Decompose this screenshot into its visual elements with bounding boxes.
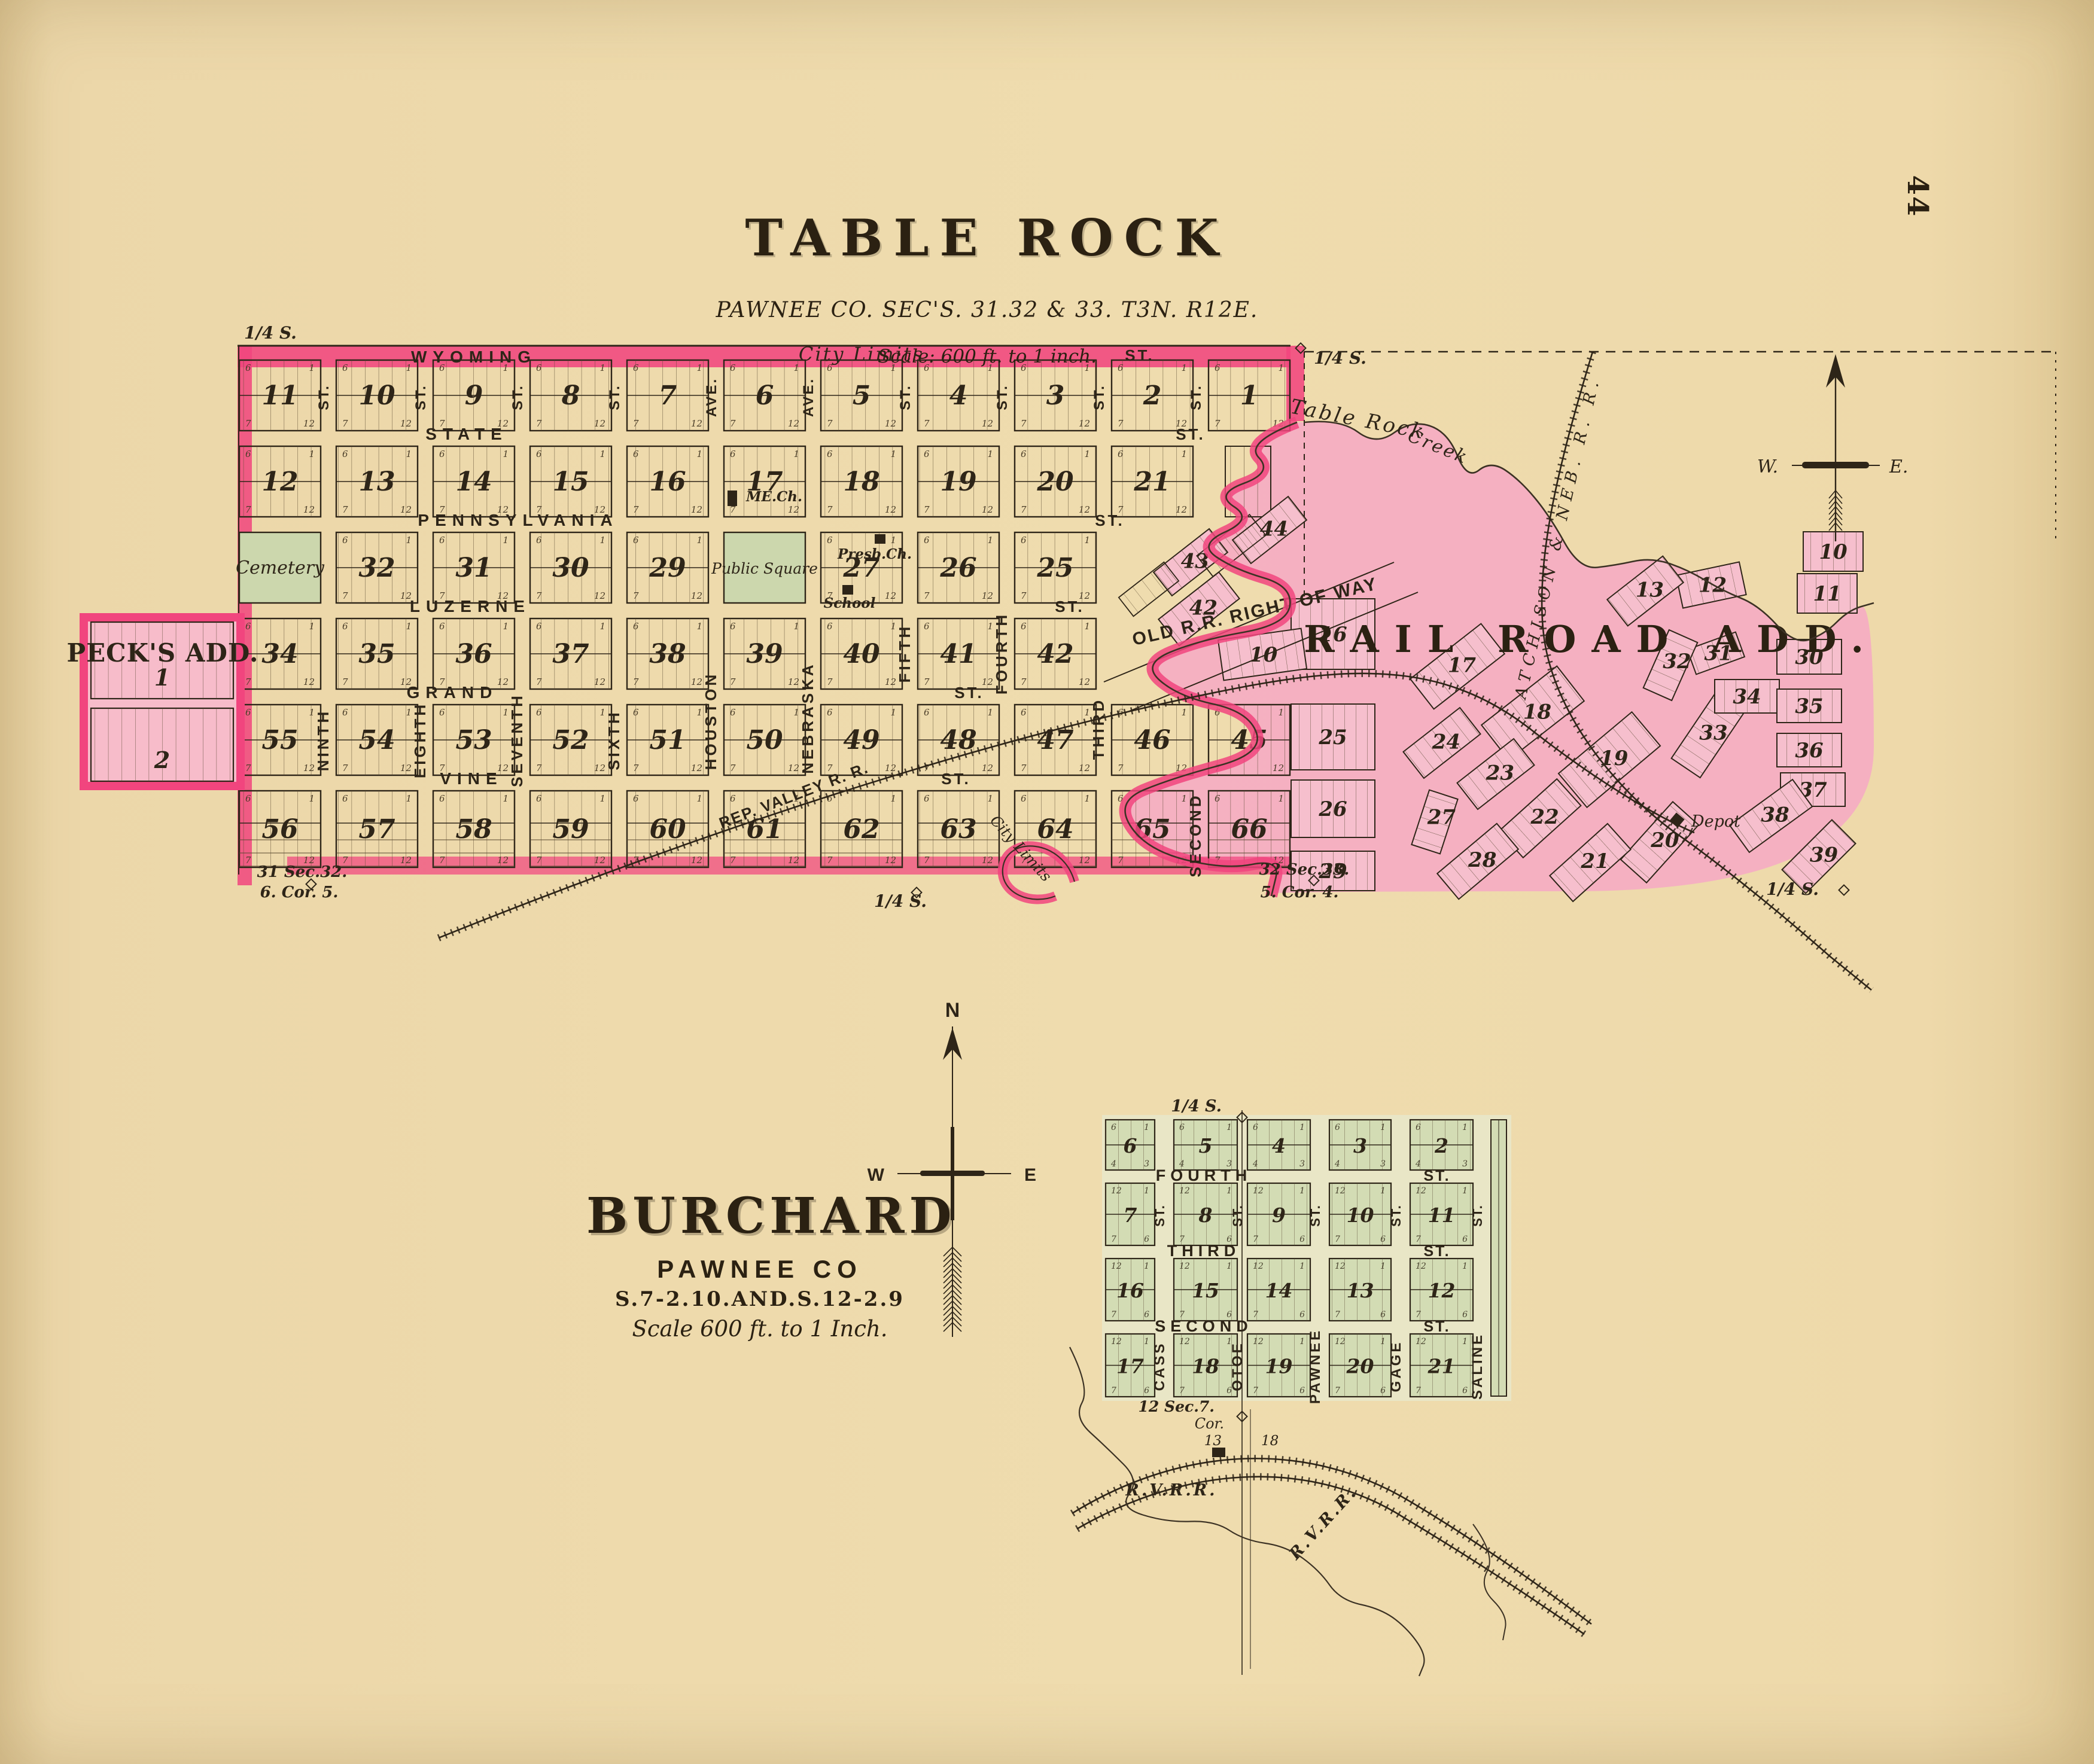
block-number: 56 [261,814,298,845]
street-suffix-vertical: ST. [1188,384,1204,410]
lot-number: 6 [439,793,445,804]
compass-west-label: W. [1757,456,1778,477]
compass-feather [943,1285,952,1294]
lot-number: 7 [1111,1386,1116,1396]
block-number: 12 [1428,1279,1456,1302]
burchard-block: 1217612 [1410,1259,1473,1321]
lot-number: 6 [730,449,736,459]
block-number: 57 [358,814,395,845]
lot-number: 1 [599,793,605,804]
lot-number: 6 [342,362,348,373]
street-label-second: SECOND [1155,1317,1253,1335]
lot-number: 12 [1079,677,1090,687]
city-block: Public Square [711,532,818,603]
lot-number: 6 [827,449,833,459]
street-label-fifth: FIFTH [896,624,914,683]
burchard-title: BURCHARD [586,1187,933,1245]
city-block: 6171239 [724,619,805,689]
block-number: 34 [1733,685,1761,709]
city-block: 6171226 [918,532,999,603]
compass-east-label: E. [1889,456,1908,477]
lot-number: 4 [1415,1159,1421,1169]
city-block: 6171229 [627,532,708,603]
lot-number: 6 [1462,1386,1468,1396]
me-church-building [728,490,737,506]
street-label-saline: SALINE [1469,1333,1486,1400]
lot-number: 12 [982,418,993,429]
burchard-block: 1217616 [1106,1259,1155,1321]
lot-number: 6 [827,535,833,546]
lot-number: 1 [890,449,896,459]
city-block: 6171251 [627,705,708,775]
burchard-map: 6143661435614346143361432121767121768121… [868,999,1591,1676]
burchard-block: 1217619 [1247,1334,1310,1397]
compass-feather [952,1312,961,1321]
city-block: 6171214 [433,446,515,517]
lot-number: 7 [1416,1386,1421,1396]
lot-number: 6 [633,621,639,632]
lot-number: 7 [536,677,542,687]
lot-number: 6 [633,449,639,459]
city-block: 6171217 [724,446,805,517]
lot-number: 1 [1299,1123,1305,1132]
lot-number: 12 [1111,1337,1122,1346]
city-block: 6171256 [239,791,321,867]
street-label-third: THIRD [1089,697,1107,760]
compass-feather [943,1290,952,1299]
lot-number: 12 [1335,1337,1346,1346]
atlas-page: { "page": {"number": "44"}, "colors": { … [0,0,2094,1764]
city-block: 6171259 [530,791,611,867]
lot-number: 7 [730,418,736,429]
lot-number: 12 [788,855,799,866]
lot-number: 12 [400,763,412,773]
block-number: 12 [1699,574,1727,598]
burchard-block: 1217621 [1410,1334,1473,1397]
block-number: 6 [756,380,774,411]
lot-number: 1 [406,621,412,632]
block-number: 5 [853,380,871,411]
lot-number: 6 [439,707,445,718]
lot-number: 6 [439,535,445,546]
lot-number: 6 [1144,1235,1149,1244]
lot-number: 6 [1179,1123,1185,1132]
block-number: 42 [1037,639,1073,669]
burchard-block: 121768 [1174,1183,1237,1245]
lot-number: 12 [1179,1337,1190,1346]
block-number: 18 [843,467,879,497]
section-corner-label: 32 Sec.33. [1259,861,1350,879]
city-block: 6171225 [1015,532,1096,603]
lot-number: 1 [1380,1186,1386,1196]
city-block: Cemetery [236,532,325,603]
pecks-block: 2 [91,708,233,781]
block-number: 60 [649,814,686,845]
lot-number: 7 [536,590,542,601]
lot-number: 12 [982,504,993,515]
lot-number: 7 [924,418,930,429]
lot-number: 1 [503,621,509,632]
block-number: 3 [1046,380,1065,411]
block-number: 16 [1116,1279,1144,1302]
compass-feather [952,1301,961,1310]
rail-road-add-title: RAIL ROAD ADD. [1304,617,1879,661]
lot-number: 6 [536,707,542,718]
lot-number: 12 [303,763,315,773]
block-number: 11 [261,380,298,411]
lot-number: 12 [594,418,605,429]
city-block: 6171242 [1015,619,1096,689]
lot-number: 12 [303,504,315,515]
block-number: 39 [746,639,783,669]
street-suffix-vertical: ST. [1470,1204,1485,1227]
block-number: 18 [1192,1355,1219,1378]
lot-number: 6 [730,362,736,373]
lot-number: 7 [924,855,930,866]
quarter-section-label: 1/4 S. [874,891,927,911]
burchard-block: 1217610 [1329,1183,1391,1245]
burchard-block: 61432 [1410,1120,1473,1170]
block-number: 8 [1198,1204,1213,1227]
lot-number: 7 [924,677,930,687]
table-rock-subtitle: PAWNEE CO. SEC'S. 31.32 & 33. T3N. R12E. [658,298,1316,322]
lot-number: 1 [696,449,702,459]
compass-feather [943,1263,952,1272]
lot-number: 1 [599,621,605,632]
lot-number: 6 [1144,1386,1149,1396]
lot-number: 7 [536,763,542,773]
lot-number: 6 [245,449,251,459]
quarter-section-label: 1/4 S. [1171,1097,1222,1116]
burchard-block: 61434 [1247,1120,1310,1170]
lot-number: 12 [691,504,702,515]
compass-feather [943,1323,952,1332]
lot-number: 1 [1144,1262,1149,1271]
block-number: 36 [1795,739,1823,763]
compass-crossbar-bold [1802,462,1869,468]
city-block: 617122 [1112,360,1193,431]
lot-number: 7 [245,677,251,687]
lot-number: 12 [982,590,993,601]
street-label-state: STATE [425,425,508,443]
block-number: 3 [1353,1134,1367,1157]
lot-number: 6 [924,535,930,546]
me-church-label: ME.Ch. [745,489,802,505]
lot-number: 12 [1253,1262,1264,1271]
lot-number: 6 [1299,1310,1305,1320]
lot-number: 7 [730,855,736,866]
lot-number: 6 [827,707,833,718]
block-number: 15 [1192,1279,1219,1302]
street-suffix-vertical: ST. [897,384,914,410]
lot-number: 12 [303,418,315,429]
compass-feather [943,1258,952,1267]
lot-number: 6 [342,449,348,459]
lot-number: 1 [1462,1262,1468,1271]
lot-number: 6 [1299,1235,1305,1244]
compass-feather [952,1258,961,1267]
lot-number: 1 [503,535,509,546]
city-block: 6171238 [627,619,708,689]
compass-east-label: E [1024,1165,1036,1185]
lot-number: 7 [633,504,639,515]
lot-number: 1 [1226,1262,1232,1271]
fan-block: 36 [1777,733,1842,767]
city-block: 6171213 [336,446,418,517]
street-label-ninth: NINTH [314,709,332,771]
section-corner-label: 5. Cor. 4. [1261,883,1339,901]
compass-rose-table-rock: W.E. [1757,354,1909,541]
block-number: 19 [940,467,976,497]
section-corner-label: 31 Sec.32. [257,863,348,881]
quarter-section-label: 1/4 S. [1314,348,1366,368]
street-suffix: ST. [954,684,984,702]
fan-block: 11 [1797,574,1857,613]
lot-number: 7 [633,590,639,601]
city-block: 6171254 [336,705,418,775]
lot-number: 12 [497,677,509,687]
block-number: 4 [1272,1134,1286,1157]
lot-number: 7 [1335,1310,1340,1320]
lot-number: 7 [1253,1235,1258,1244]
lot-number: 6 [924,793,930,804]
lot-number: 1 [1084,621,1090,632]
city-block: 6171240 [821,619,902,689]
street-suffix: ST. [1055,598,1085,616]
block-number: 53 [455,725,492,755]
lot-number: 1 [309,793,315,804]
lot-number: 12 [1416,1186,1426,1196]
lot-number: 7 [1111,1235,1116,1244]
lot-number: 12 [1176,504,1187,515]
street-label-fourth: FOURTH [1156,1166,1252,1184]
lot-number: 6 [1111,1123,1116,1132]
street-suffix-vertical: ST. [1308,1204,1323,1227]
compass-feather [952,1323,961,1332]
block-number: 62 [843,814,879,845]
block-number: 20 [1036,467,1074,497]
street-suffix-vertical: AVE. [704,377,720,417]
lot-number: 6 [1021,621,1027,632]
city-block: 6171260 [627,791,708,867]
block-number: 11 [1813,582,1841,606]
lot-number: 1 [1144,1186,1149,1196]
lot-number: 1 [987,793,993,804]
lot-number: 1 [696,535,702,546]
compass-feather [943,1274,952,1283]
block-number: 12 [261,467,298,497]
lot-number: 6 [1380,1235,1386,1244]
lot-number: 1 [793,621,799,632]
block-number: 33 [1699,721,1727,745]
lot-number: 1 [890,535,896,546]
lot-number: 6 [827,621,833,632]
block-number: 13 [358,467,395,497]
block-number: 49 [843,725,879,755]
street-suffix: ST. [1423,1318,1450,1335]
lot-number: 4 [1110,1159,1116,1169]
fan-block: 26 [1291,780,1375,837]
quarter-section-label: 1/4 S. [244,323,297,343]
lot-number: 6 [1021,707,1027,718]
street-suffix-vertical: ST. [607,384,623,410]
lot-number: 12 [885,855,896,866]
block-number: 38 [1761,803,1789,827]
lot-number: 3 [1380,1159,1386,1169]
lot-number: 7 [633,418,639,429]
block-number: 36 [455,639,492,669]
block-number: 66 [1231,814,1267,845]
green-square-label: Cemetery [236,557,325,578]
lot-number: 6 [924,707,930,718]
block-number: 7 [659,380,677,411]
block-number: 19 [1265,1355,1293,1378]
lot-number: 7 [827,855,833,866]
block-number: 41 [940,639,976,669]
lot-number: 7 [1021,504,1027,515]
city-block: 617124 [918,360,999,431]
street-label-nebraska: NEBRASKA [799,662,817,773]
block-number: 54 [358,725,395,755]
lot-number: 6 [1462,1235,1468,1244]
block-number: 25 [1036,553,1073,583]
lot-number: 1 [1380,1337,1386,1346]
city-block: 6171237 [530,619,611,689]
lot-number: 7 [1253,1310,1258,1320]
lot-number: 6 [342,707,348,718]
lot-number: 7 [342,677,348,687]
street-suffix-vertical: ST. [1230,1204,1245,1227]
fan-block: 25 [1291,704,1375,770]
street-suffix: ST. [941,770,971,788]
lot-number: 7 [245,504,251,515]
street-label-second: SECOND [1186,793,1204,877]
lot-number: 6 [245,707,251,718]
block-number: 23 [1486,761,1514,785]
block-number: 52 [552,725,589,755]
lot-number: 6 [1253,1123,1258,1132]
city-block: 617129 [433,360,515,431]
lot-number: 6 [730,707,736,718]
lot-number: 1 [309,621,315,632]
block-number: 21 [1133,467,1170,497]
block-number: 13 [1636,578,1664,602]
street-label-seventh: SEVENTH [508,693,526,787]
lot-number: 6 [924,449,930,459]
street-label-pawnee: PAWNEE [1307,1329,1323,1404]
lot-number: 12 [788,677,799,687]
lot-number: 1 [1380,1123,1386,1132]
block-number: 28 [1468,848,1496,872]
green-square-label: Public Square [711,560,818,577]
lot-number: 1 [599,449,605,459]
lot-number: 6 [1462,1310,1468,1320]
lot-number: 7 [245,418,251,429]
lot-number: 12 [594,677,605,687]
block-number: 6 [1124,1134,1137,1157]
lot-number: 12 [885,590,896,601]
street-suffix-vertical: ST. [994,384,1011,410]
city-block: 6171258 [433,791,515,867]
lot-number: 6 [536,362,542,373]
block-number: 44 [1260,517,1288,541]
section-corner-marker [1839,885,1849,895]
table-rock-title: TABLE ROCK [688,208,1286,267]
lot-number: 12 [885,763,896,773]
city-block: 6171216 [627,446,708,517]
burchard-sections-note: S.7-2.10.AND.S.12-2.9 [598,1287,921,1311]
lot-number: 3 [1299,1159,1305,1169]
lot-number: 1 [1144,1337,1149,1346]
block-number: 63 [940,814,976,845]
city-block: 617128 [530,360,611,431]
city-block: 6171255 [239,705,321,775]
city-block: 6171246 [1112,705,1193,775]
lot-number: 1 [1226,1186,1232,1196]
lot-number: 7 [1335,1386,1340,1396]
lot-number: 7 [827,677,833,687]
lot-number: 12 [303,677,315,687]
block-number: 58 [455,814,492,845]
lot-number: 1 [406,535,412,546]
lot-number: 1 [1278,793,1284,804]
block-number: 35 [358,639,395,669]
city-block: 6171211 [239,360,321,431]
lot-number: 6 [439,621,445,632]
block-number: 38 [649,639,686,669]
street-label-third: THIRD [1167,1242,1241,1260]
street-label-pennsylvania: PENNSYLVANIA [418,511,618,529]
presb-church-building [875,534,885,544]
block-number: 17 [1116,1355,1144,1378]
lot-number: 6 [342,621,348,632]
lot-number: 7 [924,590,930,601]
block-number: 27 [1427,806,1456,830]
lot-number: 1 [1462,1186,1468,1196]
lot-number: 7 [924,504,930,515]
lot-number: 1 [987,535,993,546]
lot-number: 12 [1179,1186,1190,1196]
city-block: 617123 [1015,360,1096,431]
burchard-subtitle: PAWNEE CO [610,1255,909,1284]
lot-number: 7 [633,677,639,687]
block-number: 7 [1124,1204,1137,1227]
burchard-block: 61435 [1174,1120,1237,1170]
block-number: 32 [358,553,395,583]
lot-number: 7 [536,418,542,429]
lot-number: 6 [439,449,445,459]
street-label-houston: HOUSTON [702,672,720,770]
lot-number: 7 [342,763,348,773]
lot-number: 12 [691,418,702,429]
street-label-otoe: OTOE [1229,1341,1246,1391]
block-number: 10 [1249,643,1278,667]
lot-number: 7 [245,855,251,866]
lot-number: 1 [1084,793,1090,804]
block-number: 14 [455,467,492,497]
block-number: 50 [746,725,783,755]
city-block: 6171212 [239,446,321,517]
block-number: 1 [154,664,170,691]
block-number: 8 [561,380,580,411]
city-block: 6171221 [1112,446,1193,517]
compass-west-label: W [868,1165,885,1185]
lot-number: 12 [1079,504,1090,515]
compass-feather [943,1312,952,1321]
lot-number: 6 [1144,1310,1149,1320]
lot-number: 12 [1079,418,1090,429]
compass-feather [952,1306,961,1315]
